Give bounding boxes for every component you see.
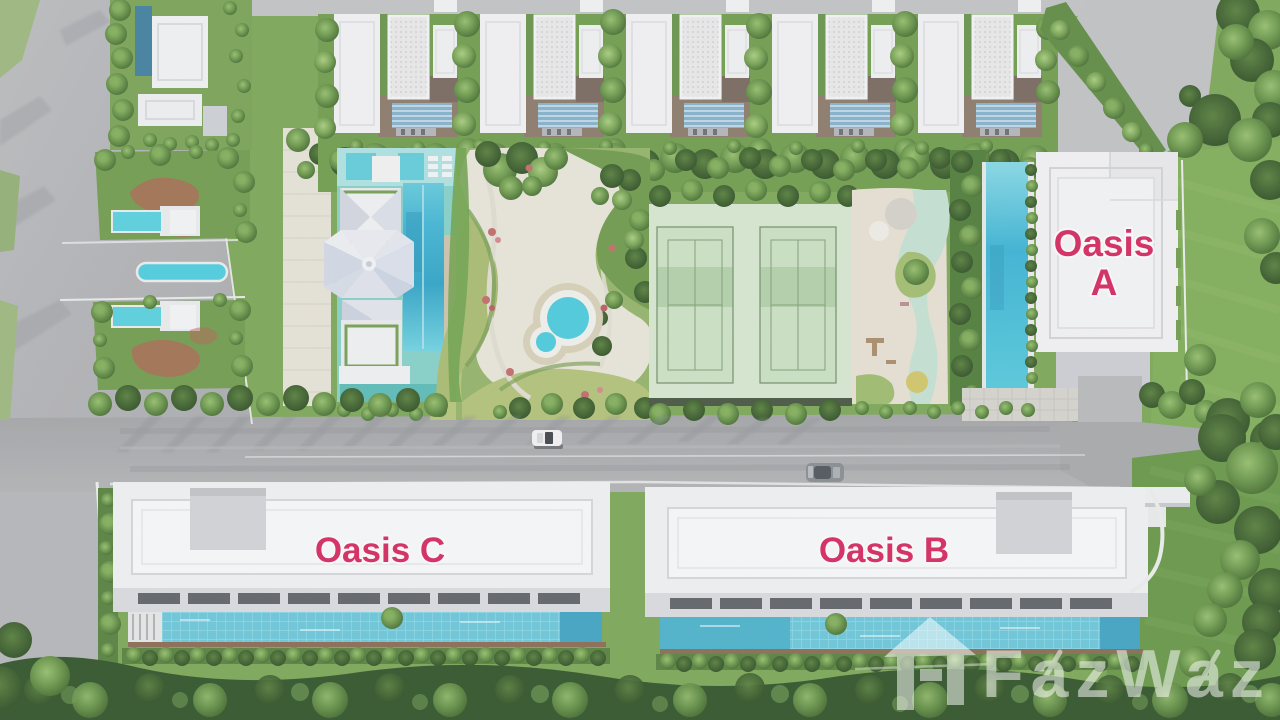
- svg-text:FazWaz: FazWaz: [982, 636, 1271, 712]
